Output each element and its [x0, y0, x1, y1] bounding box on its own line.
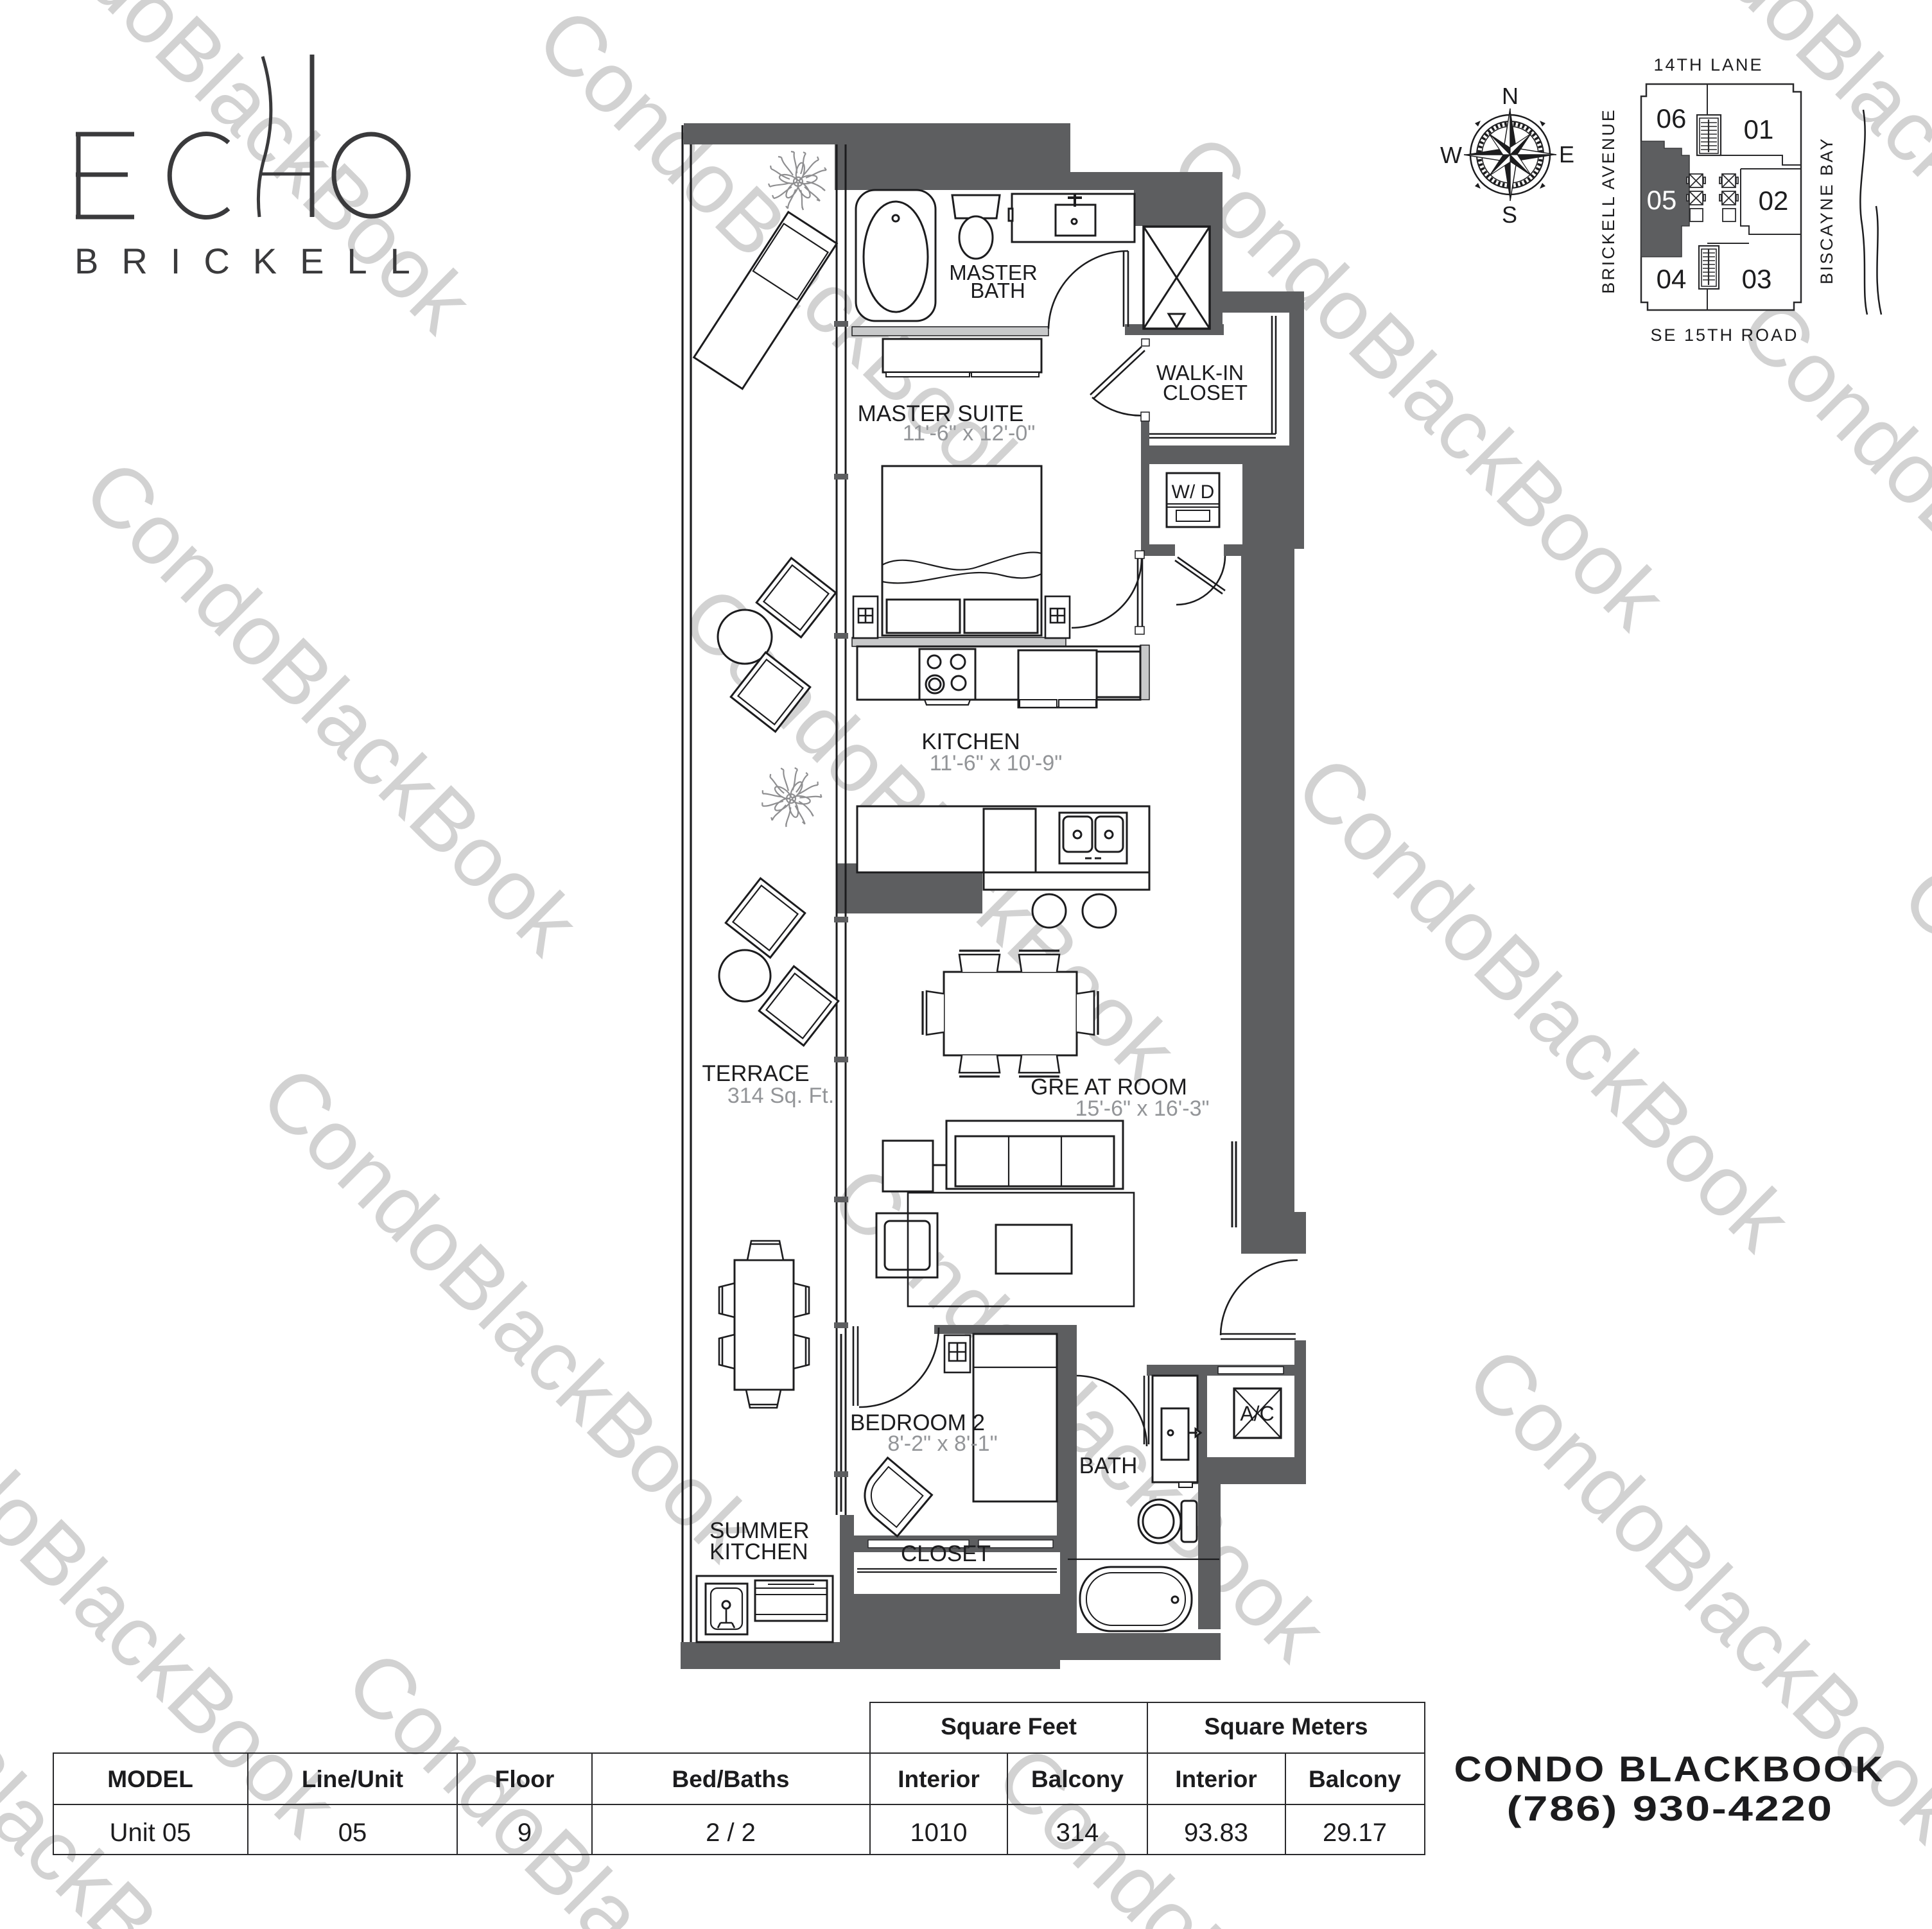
svg-text:05: 05: [1647, 185, 1677, 215]
svg-text:SE 15TH ROAD: SE 15TH ROAD: [1650, 325, 1798, 345]
svg-text:02: 02: [1759, 186, 1789, 216]
svg-text:KITCHEN: KITCHEN: [709, 1539, 808, 1564]
svg-text:Square Meters: Square Meters: [1205, 1713, 1368, 1740]
svg-text:8'-2" x 8'-1": 8'-2" x 8'-1": [887, 1432, 997, 1456]
svg-text:314 Sq. Ft.: 314 Sq. Ft.: [727, 1084, 834, 1108]
svg-text:CONDO BLACKBOOK: CONDO BLACKBOOK: [1454, 1750, 1885, 1790]
svg-text:01: 01: [1744, 114, 1774, 144]
svg-text:CondoBlackBook: CondoBlackBook: [65, 442, 596, 973]
svg-text:93.83: 93.83: [1184, 1819, 1248, 1847]
svg-text:04: 04: [1657, 264, 1687, 294]
svg-text:11'-6" x 12'-0": 11'-6" x 12'-0": [903, 421, 1036, 445]
svg-text:CLOSET: CLOSET: [901, 1541, 991, 1566]
svg-text:BRICKELL: BRICKELL: [74, 241, 433, 281]
svg-text:Unit 05: Unit 05: [110, 1819, 191, 1847]
svg-text:06: 06: [1657, 103, 1687, 134]
svg-text:TERRACE: TERRACE: [702, 1061, 809, 1086]
svg-text:Interior: Interior: [898, 1766, 979, 1792]
svg-text:CondoBlackBook: CondoBlackBook: [0, 0, 490, 350]
svg-text:W/ D: W/ D: [1172, 481, 1215, 503]
svg-text:MODEL: MODEL: [107, 1766, 193, 1792]
svg-text:Line/Unit: Line/Unit: [302, 1766, 403, 1792]
svg-text:CondoBlackBook: CondoBlackBook: [243, 1048, 773, 1579]
svg-text:1010: 1010: [910, 1819, 968, 1847]
svg-text:Bed/Baths: Bed/Baths: [672, 1766, 790, 1792]
svg-text:Square Feet: Square Feet: [941, 1713, 1077, 1740]
svg-text:9: 9: [518, 1819, 532, 1847]
svg-text:BISCAYNE BAY: BISCAYNE BAY: [1817, 137, 1836, 284]
svg-text:BRICKELL AVENUE: BRICKELL AVENUE: [1599, 108, 1618, 294]
svg-text:314: 314: [1056, 1819, 1099, 1847]
svg-text:CLOSET: CLOSET: [1163, 381, 1248, 404]
svg-text:W: W: [1440, 142, 1462, 168]
svg-text:Floor: Floor: [495, 1766, 554, 1792]
svg-text:A/C: A/C: [1240, 1402, 1274, 1425]
svg-text:CondoBlackBook: CondoBlackBook: [1884, 848, 1932, 1378]
svg-text:Balcony: Balcony: [1031, 1766, 1124, 1792]
svg-text:(786) 930-4220: (786) 930-4220: [1506, 1789, 1833, 1829]
svg-text:2 / 2: 2 / 2: [706, 1819, 756, 1847]
svg-text:Balcony: Balcony: [1309, 1766, 1401, 1792]
svg-text:N: N: [1502, 83, 1519, 109]
svg-text:BATH: BATH: [970, 279, 1025, 302]
svg-text:Interior: Interior: [1175, 1766, 1257, 1792]
svg-text:11'-6" x 10'-9": 11'-6" x 10'-9": [930, 751, 1063, 775]
svg-text:15'-6" x 16'-3": 15'-6" x 16'-3": [1075, 1096, 1209, 1121]
svg-text:CondoBlackBook: CondoBlackBook: [1721, 281, 1932, 811]
svg-text:14TH LANE: 14TH LANE: [1653, 55, 1763, 74]
svg-text:05: 05: [338, 1819, 367, 1847]
svg-text:S: S: [1502, 202, 1517, 228]
svg-text:29.17: 29.17: [1323, 1819, 1387, 1847]
svg-text:E: E: [1559, 141, 1574, 168]
svg-text:03: 03: [1742, 264, 1772, 294]
svg-text:BATH: BATH: [1079, 1453, 1138, 1478]
svg-text:CondoBlackBook: CondoBlackBook: [1278, 738, 1808, 1268]
